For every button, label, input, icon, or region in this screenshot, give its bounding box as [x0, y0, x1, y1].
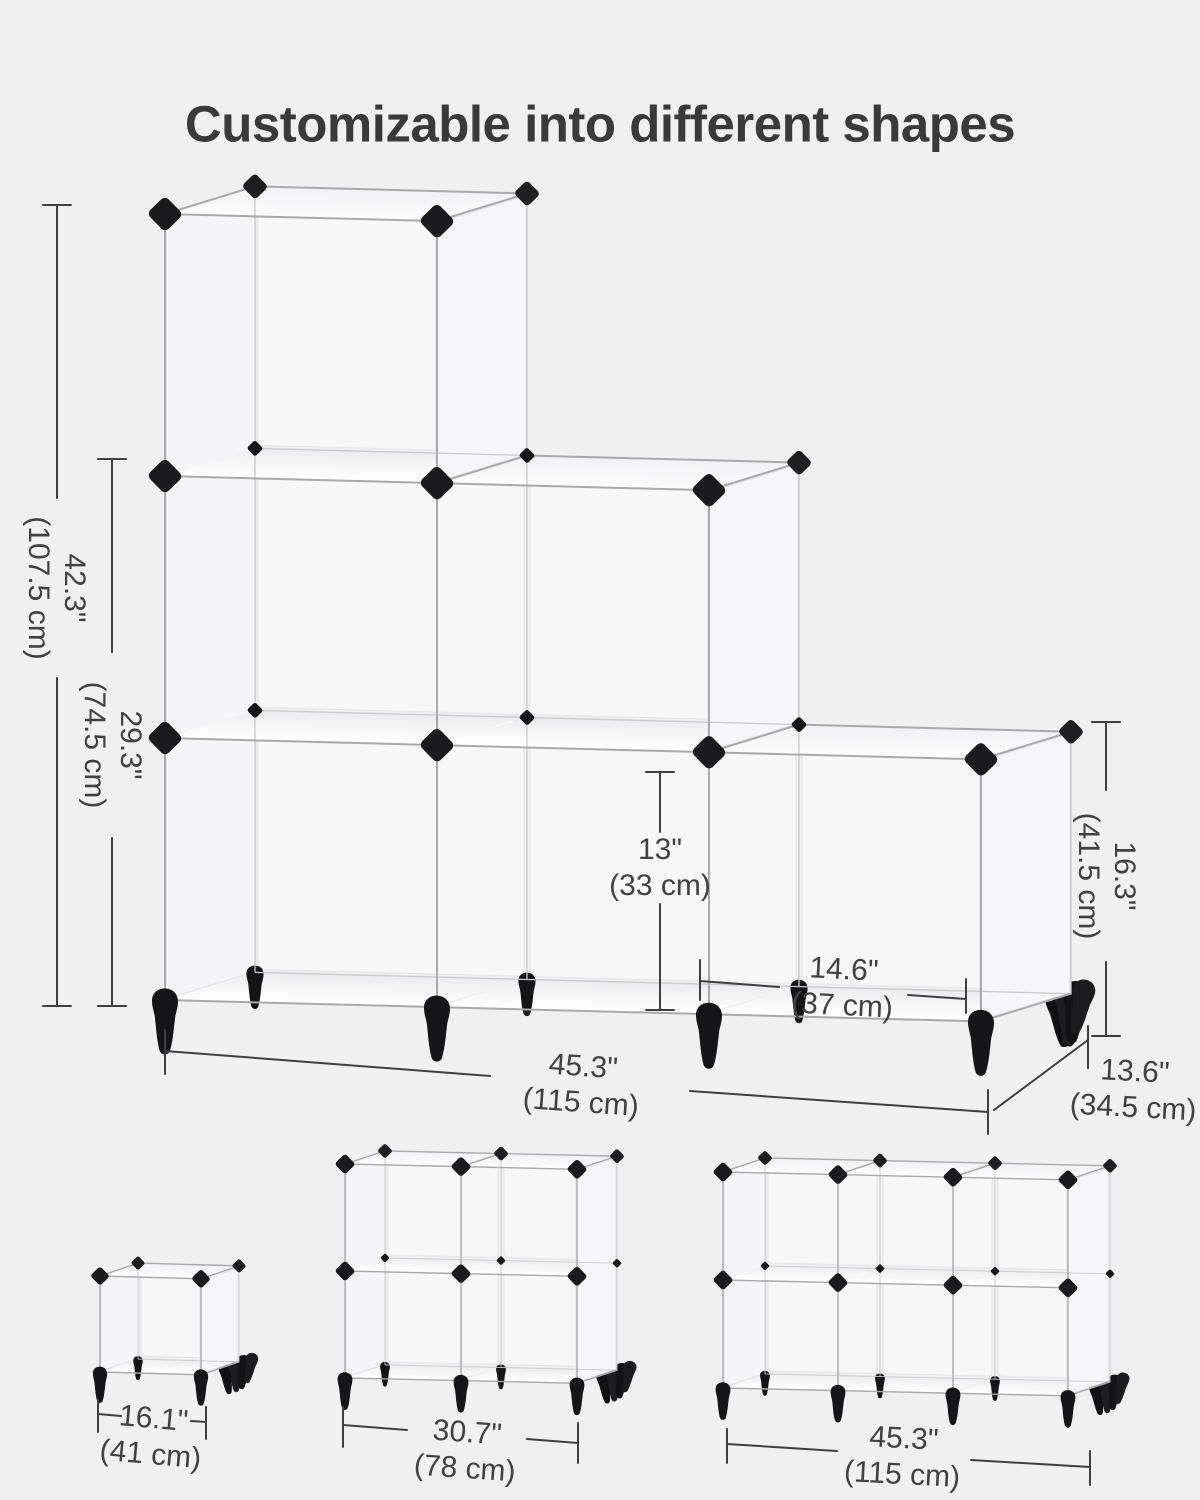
dimension-line: [690, 1091, 988, 1112]
variant-3x2-unit: [712, 1149, 1130, 1429]
dimension-label-total-width: 45.3" (115 cm): [522, 1045, 643, 1125]
support-foot: [380, 1362, 390, 1387]
side-panel-right: [1067, 1167, 1109, 1396]
dimension-label-cube-width: 14.6" (37 cm): [790, 949, 895, 1026]
support-foot: [831, 1385, 846, 1423]
organizer-units: [90, 170, 1130, 1429]
back-panel: [883, 1164, 992, 1268]
dimension-label-cube-height: 13" (33 cm): [609, 832, 711, 904]
support-foot: [424, 995, 450, 1062]
main-staircase-unit: [147, 170, 1098, 1079]
dimension-label-variant-2x2: 30.7" (78 cm): [413, 1412, 519, 1491]
variant-2x2-unit: [334, 1142, 637, 1417]
dimension-line: [343, 1425, 407, 1430]
dimension-label-total-depth: 13.6" (34.5 cm): [1069, 1051, 1199, 1130]
back-panel: [388, 1261, 498, 1364]
support-foot: [454, 1375, 469, 1413]
page-title: Customizable into different shapes: [185, 95, 1015, 154]
support-foot: [570, 1377, 585, 1415]
side-panel-right: [576, 1157, 616, 1383]
side-panel-right: [980, 731, 1070, 1022]
cube-organizer-illustration: [0, 0, 1200, 1500]
back-panel: [768, 1269, 877, 1373]
back-panel: [258, 713, 524, 976]
dimension-line: [527, 1439, 578, 1443]
support-foot: [716, 1382, 731, 1420]
support-foot: [194, 1369, 208, 1406]
side-panel-right: [436, 193, 526, 484]
variant-single-cube: [90, 1254, 259, 1407]
dimension-line: [971, 1460, 1090, 1467]
side-panel-left: [101, 1264, 139, 1372]
support-foot: [946, 1387, 961, 1425]
dimension-label-total-height: 42.3" (107.5 cm): [20, 516, 92, 659]
back-panel: [388, 1154, 498, 1257]
support-foot: [990, 1376, 1000, 1401]
support-foot: [496, 1364, 506, 1389]
support-foot: [875, 1373, 885, 1398]
back-panel: [883, 1272, 992, 1376]
back-panel: [768, 1161, 877, 1265]
dimension-label-one-tier-height: 16.3" (41.5 cm): [1070, 813, 1142, 940]
dimension-label-variant-single: 16.1" (41 cm): [98, 1397, 206, 1478]
support-foot: [760, 1371, 770, 1396]
support-foot: [968, 1010, 994, 1077]
side-panel-right: [708, 462, 798, 753]
side-panel-left: [166, 186, 256, 1001]
support-foot: [338, 1372, 353, 1410]
support-foot: [1061, 1390, 1076, 1428]
support-foot: [696, 1002, 722, 1069]
back-panel: [258, 451, 524, 714]
support-foot: [133, 1356, 142, 1380]
dimension-line: [727, 1444, 837, 1451]
dimension-label-variant-3x2: 45.3" (115 cm): [843, 1418, 963, 1496]
product-infographic: Customizable into different shapes 42.3"…: [0, 0, 1200, 1500]
dimension-label-two-tier-height: 29.3" (74.5 cm): [76, 682, 148, 809]
